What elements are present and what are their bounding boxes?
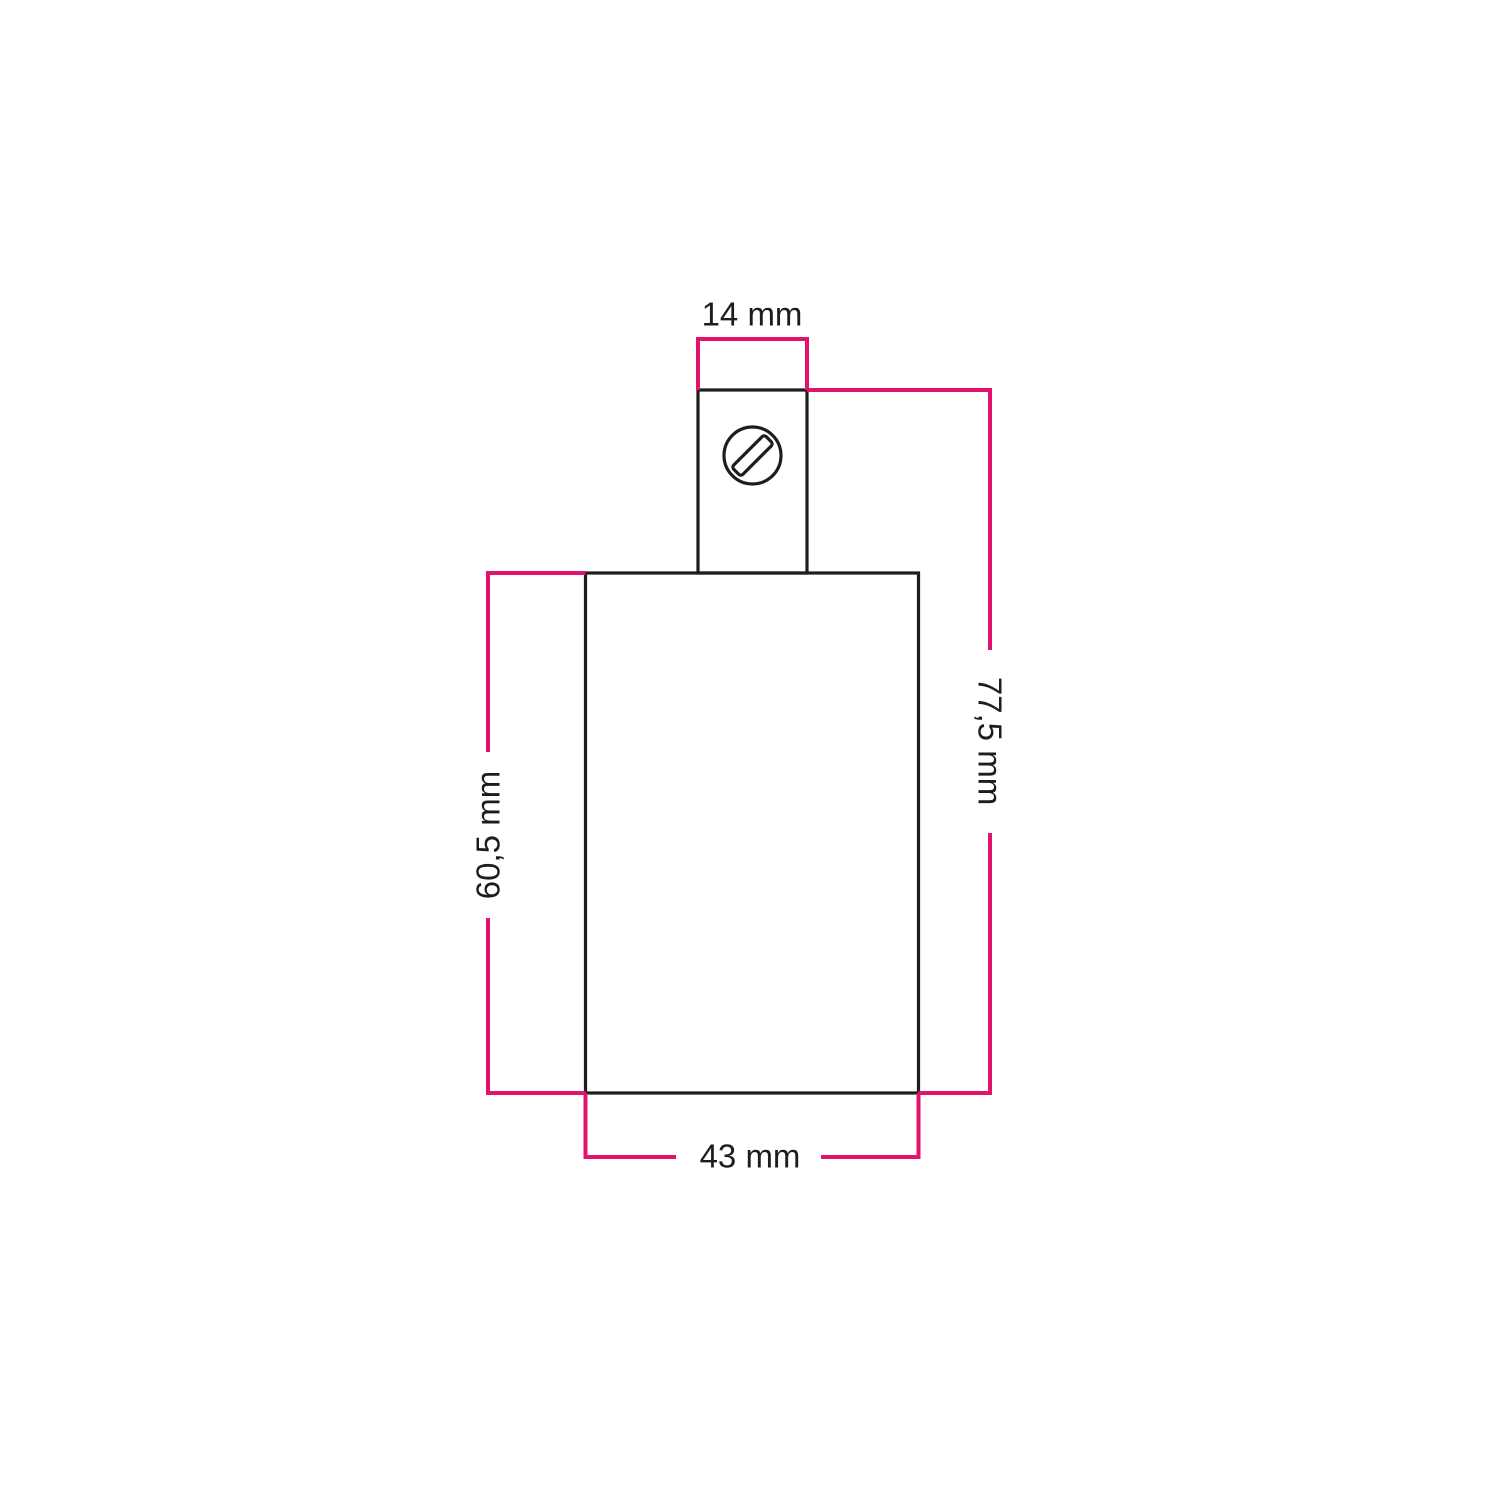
dim-label-body-width: 43 mm xyxy=(700,1140,801,1173)
dim-label-body-height: 60,5 mm xyxy=(472,771,505,899)
dim-line-overall-height xyxy=(807,390,990,1093)
drawing-svg xyxy=(0,0,1500,1500)
slotted-screw-head-icon xyxy=(724,427,781,484)
dim-label-overall-height: 77,5 mm xyxy=(974,677,1007,805)
dim-line-neck-width xyxy=(698,339,807,390)
screw-head-circle xyxy=(724,427,781,484)
technical-dimension-drawing: 14 mm 77,5 mm 60,5 mm 43 mm xyxy=(0,0,1500,1500)
product-outline xyxy=(586,390,919,1093)
cable-clamp-neck-outline xyxy=(698,390,807,573)
dim-label-neck-width: 14 mm xyxy=(702,298,803,331)
lamp-holder-body-outline xyxy=(586,573,919,1093)
screw-slot xyxy=(732,435,774,477)
